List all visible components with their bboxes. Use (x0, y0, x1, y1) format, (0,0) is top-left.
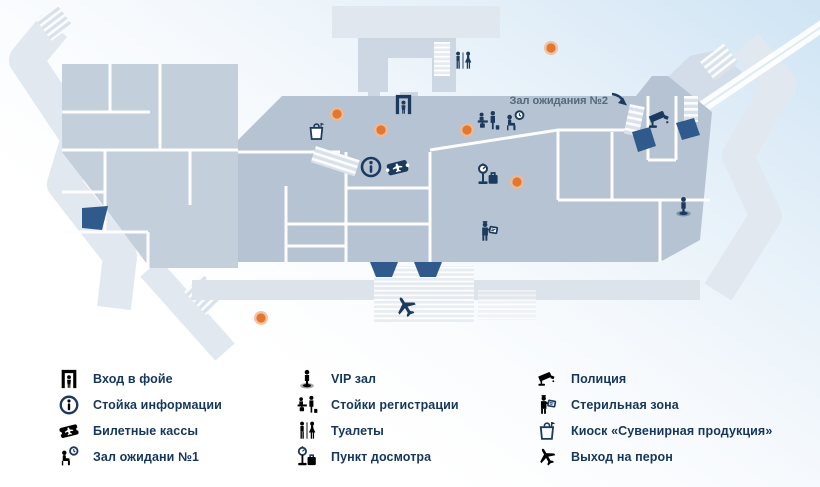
map-marker-dot[interactable] (254, 311, 268, 325)
airport-floor-plan-page: Зал ожидания №2 (0, 0, 820, 487)
legend-item-kiosk: Киоск «Сувенирная продукция» (536, 418, 772, 444)
platform-steps-right (478, 290, 536, 320)
legend-label-entrance: Вход в фойе (93, 372, 173, 386)
map-marker-dot[interactable] (330, 107, 344, 121)
legend-item-police: Полиция (536, 366, 772, 392)
legend-item-waiting: Зал ожидани №1 (58, 444, 222, 470)
legend-column-3: Полиция Стерильная зона Киоск «Сувенирна… (536, 366, 772, 470)
hall2-label: Зал ожидания №2 (509, 95, 608, 107)
legend-label-waiting: Зал ожидани №1 (93, 450, 199, 464)
police-camera-icon (536, 368, 558, 390)
floor-plan-map: Зал ожидания №2 (0, 0, 820, 362)
legend-item-vip: VIP зал (296, 366, 459, 392)
stairs-east-2 (684, 96, 698, 122)
sterile-zone-icon (536, 394, 558, 416)
map-marker-dot[interactable] (374, 123, 388, 137)
legend-item-entrance: Вход в фойе (58, 366, 222, 392)
main-hall (238, 76, 712, 262)
legend-column-1: Вход в фойе Стойка информации Билетные к… (58, 366, 222, 470)
map-marker-dot[interactable] (460, 123, 474, 137)
kiosk-icon (536, 420, 558, 442)
north-annex (332, 6, 500, 102)
legend-label-checkin: Стойки регистрации (331, 398, 459, 412)
legend-item-info: Стойка информации (58, 392, 222, 418)
map-toilets-icon (456, 52, 471, 69)
legend-item-toilets: Туалеты (296, 418, 459, 444)
legend-item-checkin: Стойки регистрации (296, 392, 459, 418)
info-icon (58, 394, 80, 416)
legend-label-vip: VIP зал (331, 372, 376, 386)
legend-label-tickets: Билетные кассы (93, 424, 198, 438)
legend: Вход в фойе Стойка информации Билетные к… (0, 366, 820, 484)
legend-item-inspection: Пункт досмотра (296, 444, 459, 470)
entrance-icon (58, 368, 80, 390)
legend-label-police: Полиция (571, 372, 626, 386)
legend-column-2: VIP зал Стойки регистрации Туалеты Пункт… (296, 366, 459, 470)
map-marker-dot[interactable] (544, 41, 558, 55)
legend-item-tickets: Билетные кассы (58, 418, 222, 444)
legend-label-info: Стойка информации (93, 398, 222, 412)
legend-label-kiosk: Киоск «Сувенирная продукция» (571, 424, 772, 438)
legend-label-toilets: Туалеты (331, 424, 384, 438)
inspection-icon (296, 446, 318, 468)
stairs-portico (434, 42, 450, 76)
legend-label-plane: Выход на перон (571, 450, 673, 464)
plane-icon (536, 446, 558, 468)
legend-item-sterile: Стерильная зона (536, 392, 772, 418)
legend-item-plane: Выход на перон (536, 444, 772, 470)
map-marker-dot[interactable] (510, 175, 524, 189)
legend-label-sterile: Стерильная зона (571, 398, 679, 412)
platform (192, 266, 700, 322)
legend-label-inspection: Пункт досмотра (331, 450, 431, 464)
checkin-icon (296, 394, 318, 416)
waiting-icon (58, 446, 80, 468)
vip-icon (296, 368, 318, 390)
tickets-icon (58, 420, 80, 442)
toilets-icon (296, 420, 318, 442)
